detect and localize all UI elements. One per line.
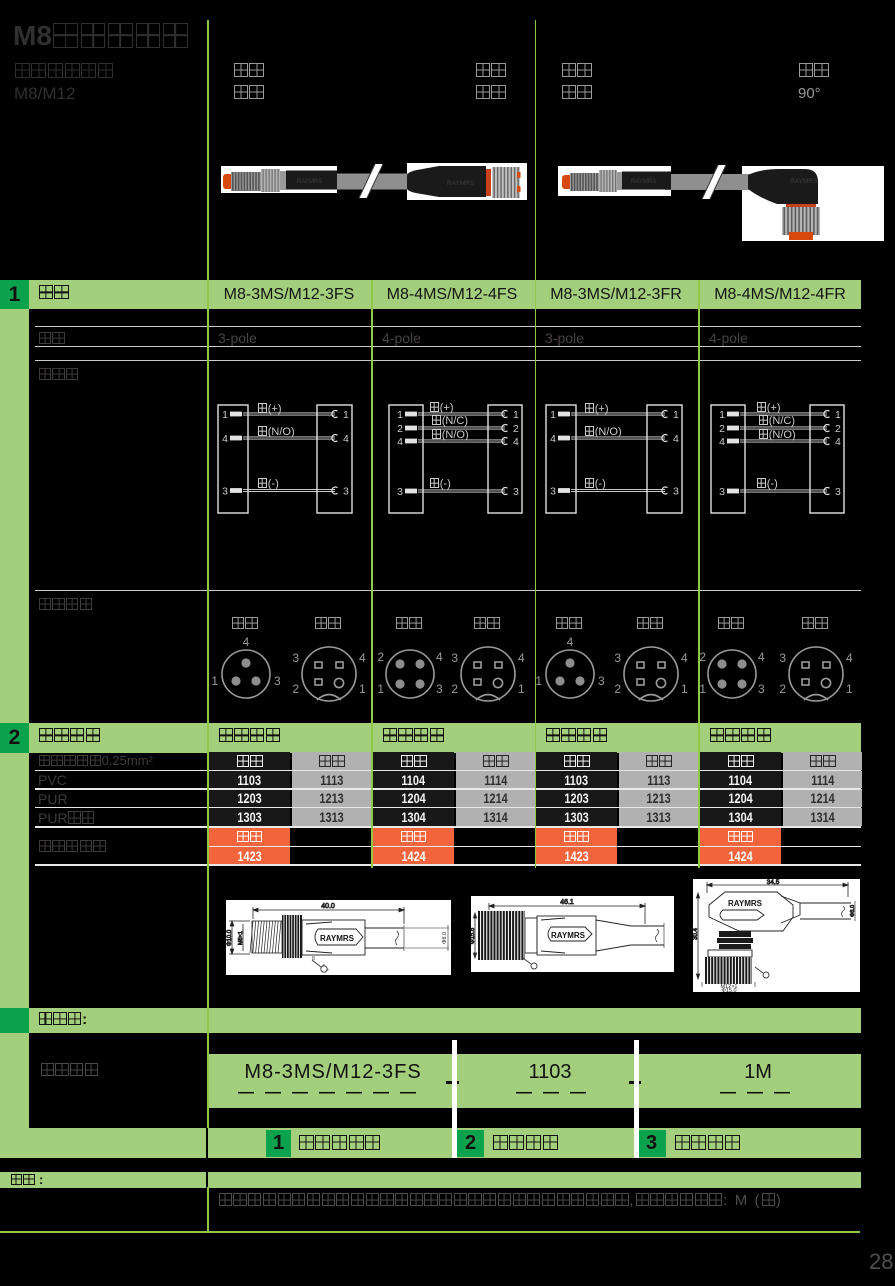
svg-text:RAYMRS: RAYMRS <box>297 179 322 185</box>
svg-text:3: 3 <box>513 486 519 498</box>
svg-text:3: 3 <box>436 682 443 696</box>
svg-text:1: 1 <box>211 674 218 688</box>
svg-text:RAYMRS: RAYMRS <box>631 179 656 185</box>
svg-text:4: 4 <box>436 650 443 664</box>
svg-text:RAYMRS: RAYMRS <box>447 180 475 187</box>
svg-text:4: 4 <box>846 651 853 665</box>
svg-text:2: 2 <box>719 423 725 435</box>
svg-text:1: 1 <box>719 409 725 421</box>
svg-text:3: 3 <box>673 485 679 497</box>
svg-text:3: 3 <box>343 485 349 497</box>
svg-text:4: 4 <box>243 635 250 649</box>
svg-text:1: 1 <box>673 409 679 421</box>
svg-text:8: 8 <box>312 956 315 962</box>
svg-text:RAYMRS: RAYMRS <box>728 899 763 908</box>
svg-text:1: 1 <box>359 682 366 696</box>
svg-text:4: 4 <box>567 635 574 649</box>
svg-text:3: 3 <box>719 486 725 498</box>
svg-text:2: 2 <box>397 423 403 435</box>
svg-text:2: 2 <box>614 682 621 696</box>
svg-text:2: 2 <box>699 650 706 664</box>
svg-text:4: 4 <box>758 650 765 664</box>
svg-text:2: 2 <box>835 423 841 435</box>
svg-text:3: 3 <box>758 682 765 696</box>
svg-text:1: 1 <box>222 409 228 421</box>
svg-text:3: 3 <box>397 486 403 498</box>
svg-text:1: 1 <box>513 409 519 421</box>
svg-text:1: 1 <box>397 409 403 421</box>
svg-text:1: 1 <box>377 682 384 696</box>
svg-text:4: 4 <box>673 433 679 445</box>
svg-text:1: 1 <box>681 682 688 696</box>
svg-text:Φ15.6: Φ15.6 <box>471 927 476 944</box>
svg-text:4: 4 <box>681 651 688 665</box>
svg-text:Φ8.0: Φ8.0 <box>850 905 856 917</box>
svg-text:2: 2 <box>451 682 458 696</box>
svg-text:1: 1 <box>343 409 349 421</box>
svg-text:2: 2 <box>377 650 384 664</box>
svg-text:4: 4 <box>518 651 525 665</box>
svg-text:M8×1: M8×1 <box>238 931 244 945</box>
svg-text:3: 3 <box>222 486 228 498</box>
svg-text:RAYMRS: RAYMRS <box>320 934 355 943</box>
svg-text:2: 2 <box>513 423 519 435</box>
svg-text:4: 4 <box>550 433 556 445</box>
svg-text:4: 4 <box>343 433 349 445</box>
svg-text:RAYMRS: RAYMRS <box>790 178 818 185</box>
svg-text:30.4: 30.4 <box>693 928 699 940</box>
svg-text:46.1: 46.1 <box>560 899 574 906</box>
svg-text:2: 2 <box>779 682 786 696</box>
svg-text:1: 1 <box>699 682 706 696</box>
svg-text:4: 4 <box>222 433 228 445</box>
svg-text:3: 3 <box>614 651 621 665</box>
svg-text:1: 1 <box>846 682 853 696</box>
svg-text:2: 2 <box>292 682 299 696</box>
svg-text:40.0: 40.0 <box>321 903 335 910</box>
svg-text:34.5: 34.5 <box>767 879 780 886</box>
svg-text:Φ10.0: Φ10.0 <box>227 929 233 946</box>
svg-text:4: 4 <box>359 651 366 665</box>
svg-text:4: 4 <box>513 436 519 448</box>
svg-text:RAYMRS: RAYMRS <box>551 931 586 940</box>
svg-text:4: 4 <box>719 436 725 448</box>
svg-text:3: 3 <box>292 651 299 665</box>
svg-text:3: 3 <box>598 674 605 688</box>
svg-text:4: 4 <box>835 436 841 448</box>
svg-text:1: 1 <box>535 674 542 688</box>
svg-text:1: 1 <box>518 682 525 696</box>
svg-text:3: 3 <box>274 674 281 688</box>
svg-text:3: 3 <box>550 486 556 498</box>
svg-text:3: 3 <box>451 651 458 665</box>
svg-text:Φ8.0: Φ8.0 <box>442 932 448 944</box>
svg-text:1: 1 <box>550 409 556 421</box>
svg-text:Φ15.0: Φ15.0 <box>721 988 736 992</box>
svg-text:3: 3 <box>779 651 786 665</box>
svg-text:3: 3 <box>835 486 841 498</box>
svg-text:1: 1 <box>835 409 841 421</box>
svg-text:4: 4 <box>397 436 403 448</box>
